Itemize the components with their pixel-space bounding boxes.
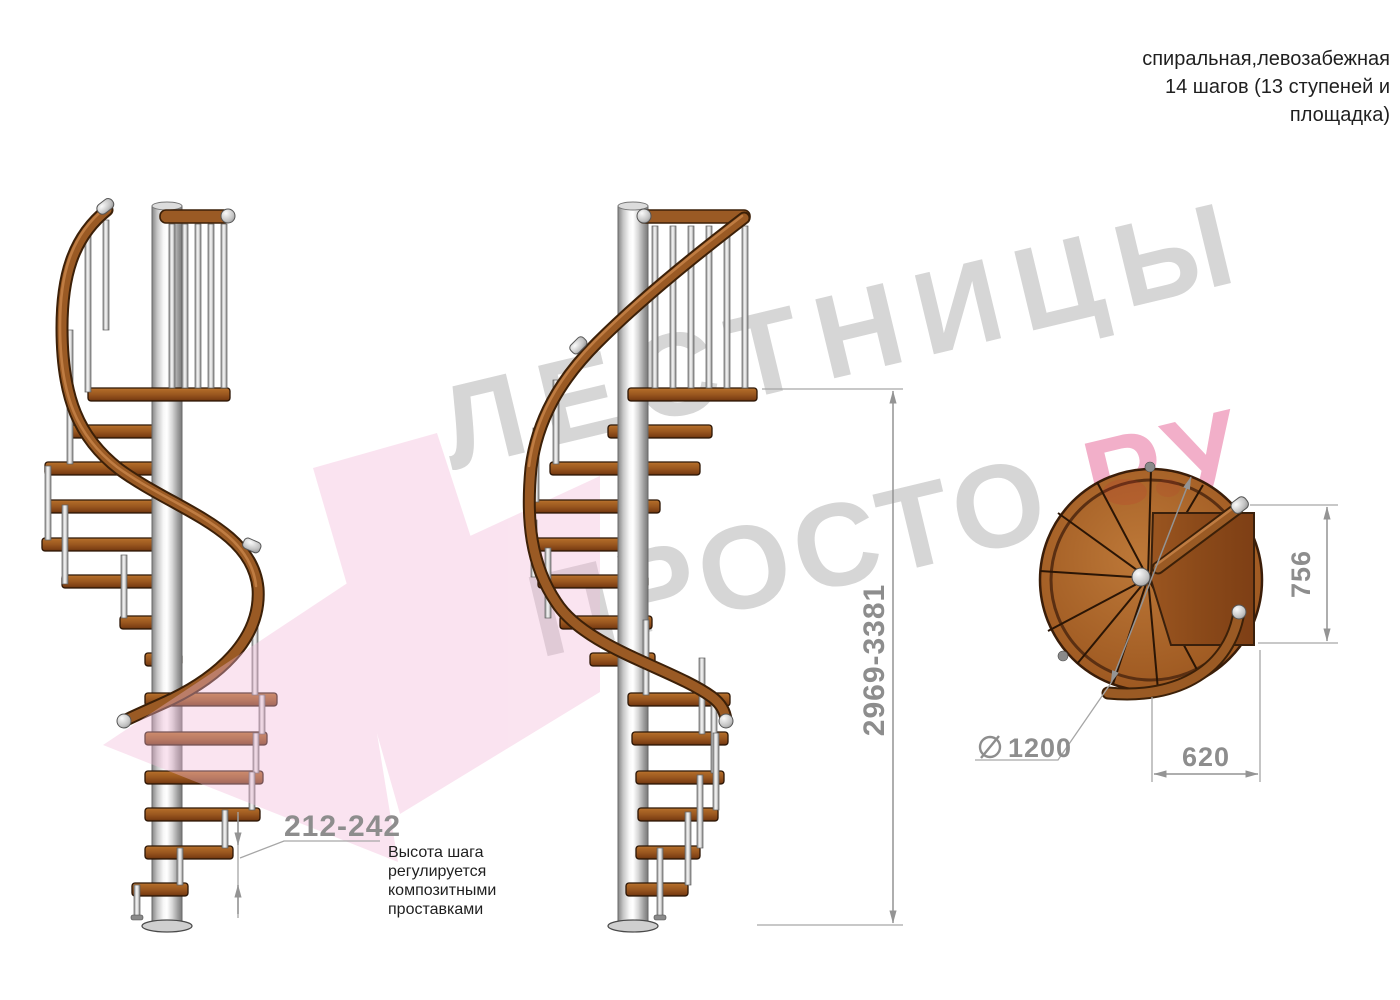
annotation-line: Высота шага bbox=[388, 844, 484, 861]
note-line: площадка) bbox=[1290, 104, 1390, 126]
handrail-end-cap bbox=[637, 209, 651, 223]
total-height-value: 2969-3381 bbox=[858, 584, 891, 736]
note-line: 14 шагов (13 ступеней и bbox=[1165, 76, 1390, 98]
landing-width-value: 620 bbox=[1182, 742, 1230, 772]
diameter-value: 1200 bbox=[1008, 733, 1072, 763]
handrail-cap bbox=[1232, 605, 1246, 619]
drawing-canvas: ЛЕСТНИЦЫ ПРОСТО.РУ bbox=[0, 0, 1400, 1000]
center-hub bbox=[1132, 568, 1150, 586]
handrail-end-cap bbox=[221, 209, 235, 223]
tread bbox=[42, 538, 170, 551]
handrail-bottom-cap bbox=[117, 714, 131, 728]
platform-handrail bbox=[160, 210, 230, 223]
dimension-landing-depth: 756 bbox=[1250, 505, 1338, 643]
note-line: спиральная,левозабежная bbox=[1142, 48, 1390, 70]
tread bbox=[145, 808, 260, 821]
annotation-line: проставками bbox=[388, 901, 483, 918]
platform-railing bbox=[160, 209, 235, 388]
step-height-value: 212-242 bbox=[284, 810, 401, 843]
note-top-right: спиральная,левозабежная 14 шагов (13 сту… bbox=[1142, 48, 1390, 126]
diameter-symbol-icon bbox=[980, 736, 1000, 758]
platform-tread bbox=[88, 388, 230, 401]
tread bbox=[145, 846, 233, 859]
side-view-1 bbox=[42, 197, 277, 932]
pole-base bbox=[608, 920, 658, 932]
tread bbox=[638, 808, 718, 821]
platform-tread bbox=[628, 388, 757, 401]
handrail-bottom-cap bbox=[719, 714, 733, 728]
staircase-drawing-page: ЛЕСТНИЦЫ ПРОСТО.РУ bbox=[0, 0, 1400, 1000]
annotation-line: регулируется bbox=[388, 863, 486, 880]
dimension-step-height: 212-242 bbox=[238, 810, 401, 918]
pole-base bbox=[142, 920, 192, 932]
annotation-line: композитными bbox=[388, 882, 496, 899]
landing-depth-value: 756 bbox=[1286, 550, 1316, 598]
annotation-step-height: Высота шага регулируется композитными пр… bbox=[388, 844, 496, 918]
